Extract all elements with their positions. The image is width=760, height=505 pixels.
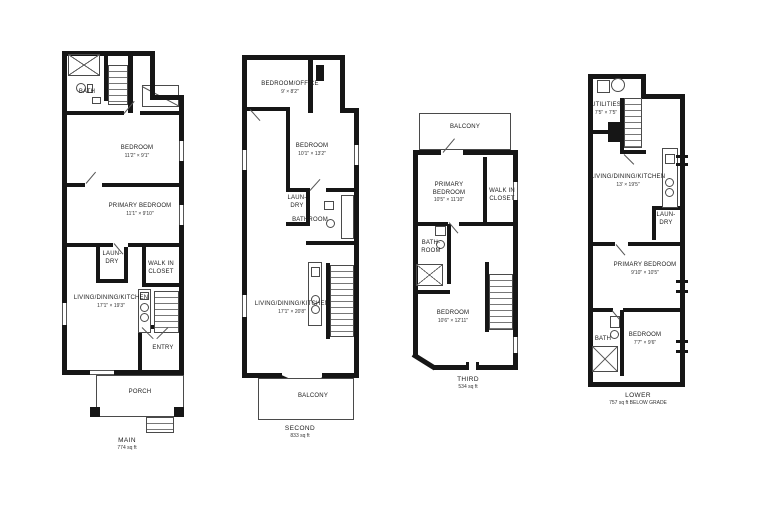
wall (67, 243, 113, 247)
room-dims: 9' × 8'2" (281, 89, 299, 96)
stove-burner (665, 188, 674, 197)
room-dims: 7'5" × 7'5" (595, 110, 617, 117)
window-frame (676, 290, 688, 293)
chimney-block (316, 65, 324, 81)
wall (340, 55, 345, 113)
room-label: LAUN-DRY (287, 195, 307, 210)
room-name: BEDROOM (121, 145, 153, 153)
floorplan-sheet: { "drawing": { "wall_color": "#161616", … (0, 0, 760, 505)
wall (459, 222, 518, 226)
stove-burner (665, 178, 674, 187)
room-label: BEDROOM10'6" × 12'11" (425, 310, 481, 324)
wall (418, 290, 450, 294)
room-dims: 10'6" × 12'11" (438, 318, 468, 325)
porch-steps (146, 417, 174, 433)
window (242, 295, 247, 317)
room-dims: 9'10" × 10'5" (631, 270, 659, 277)
room-name: BATH (79, 89, 95, 97)
room-label: BATH (72, 89, 102, 97)
wall (150, 51, 155, 100)
room-dims: 11'1" × 9'10" (126, 211, 153, 218)
wall (447, 224, 451, 284)
wall (479, 365, 518, 370)
room-label: LAUN-DRY (101, 251, 123, 266)
window (242, 150, 247, 170)
sink-fixture (435, 226, 446, 236)
room-label: BALCONY (435, 124, 495, 132)
floor-area: 757 sq ft BELOW GRADE (609, 400, 667, 406)
room-label: BEDROOM/OFFICE9' × 8'2" (258, 81, 322, 95)
wall (463, 150, 518, 155)
room-label: BEDROOM7'7" × 9'6" (617, 332, 673, 346)
chimney-block (608, 122, 620, 142)
room-label: BATHROOM (290, 217, 330, 225)
stairs (624, 98, 642, 148)
wall (128, 243, 179, 247)
room-label: LIVING/DINING/KITCHEN17'1" × 20'8" (268, 301, 316, 315)
wall (102, 183, 179, 187)
sink-fixture (92, 97, 101, 104)
floor-title: THIRD (457, 376, 479, 383)
room-name: PRIMARY BEDROOM (109, 203, 172, 211)
room-label: PRIMARY BEDROOM11'1" × 9'10" (100, 203, 180, 217)
sink-fixture (311, 267, 320, 277)
sink-fixture (665, 154, 675, 164)
porch-post (174, 407, 184, 417)
floor-title-block: LOWER757 sq ft BELOW GRADE (588, 392, 688, 406)
room-dims: 17'1" × 20'8" (278, 309, 306, 316)
wall (641, 94, 685, 99)
window-frame (676, 340, 688, 343)
window-frame (676, 163, 688, 166)
window (179, 141, 184, 161)
wall (326, 188, 359, 192)
floor-title: MAIN (118, 437, 136, 444)
window (354, 145, 359, 165)
wall (588, 382, 685, 387)
room-label: BALCONY (285, 393, 341, 401)
wall (306, 241, 359, 245)
room-name: LIVING/DINING/KITCHEN (591, 174, 666, 182)
room-name: BATH (595, 336, 611, 344)
room-name: LIVING/DINING/KITCHEN (74, 295, 149, 303)
shower-fixture (68, 54, 100, 76)
room-name: PRIMARY BEDROOM (614, 262, 677, 270)
room-name: WALK IN CLOSET (146, 261, 176, 276)
room-name: BEDROOM (437, 310, 469, 318)
wall (247, 107, 288, 111)
room-label: LAUN-DRY (656, 212, 676, 227)
wall (628, 242, 680, 246)
room-dims: 10'1" × 13'2" (298, 151, 326, 158)
wall (142, 283, 179, 287)
wall (593, 308, 613, 312)
chamfer-wall (412, 352, 437, 370)
room-label: PRIMARY BEDROOM10'5" × 11'10" (418, 182, 480, 204)
balcony-outline (419, 113, 511, 150)
room-label: UTILITIES7'5" × 7'5" (590, 102, 622, 116)
stairs (330, 265, 354, 337)
room-dims: 10'5" × 11'10" (434, 197, 464, 204)
floor-title: LOWER (625, 392, 651, 399)
wall (680, 94, 685, 387)
room-label: LIVING/DINING/KITCHEN13' × 19'5" (604, 174, 652, 188)
floor-title: SECOND (285, 425, 315, 432)
wall (593, 242, 615, 246)
room-label: BEDROOM10'1" × 13'2" (282, 143, 342, 157)
room-name: PRIMARY BEDROOM (418, 182, 480, 197)
wall (140, 111, 179, 115)
wall (62, 51, 67, 375)
room-label: PORCH (112, 389, 168, 397)
porch-post (90, 407, 100, 417)
floor-plan-lower: UTILITIES7'5" × 7'5" LIVING/DINING/KITCH… (588, 70, 690, 410)
window (513, 337, 518, 353)
wall (433, 365, 466, 370)
utility-fixture (611, 78, 625, 92)
door-swing (624, 154, 635, 165)
door-post (476, 362, 479, 370)
room-dims: 11'2" × 9'1" (125, 153, 150, 160)
room-name: LAUN-DRY (287, 195, 307, 210)
room-dims: 17'1" × 19'3" (97, 303, 125, 310)
stairs (108, 65, 128, 105)
wall (96, 247, 100, 281)
room-dims: 13' × 19'5" (616, 182, 639, 189)
room-label: WALK IN CLOSET (146, 261, 176, 276)
wall (96, 279, 128, 283)
room-label: PRIMARY BEDROOM9'10" × 10'5" (610, 262, 680, 276)
room-label: LIVING/DINING/KITCHEN17'1" × 19'3" (87, 295, 135, 309)
room-dims: 7'7" × 9'6" (634, 340, 656, 347)
room-name: LIVING/DINING/KITCHEN (255, 301, 330, 309)
door-swing (310, 179, 321, 191)
floor-title-block: SECOND833 sq ft (255, 425, 345, 439)
room-name: BATHROOM (292, 217, 328, 225)
wall (623, 308, 680, 312)
room-name: LAUN-DRY (101, 251, 123, 266)
room-name: BALCONY (298, 393, 328, 401)
window-frame (676, 350, 688, 353)
room-name: UTILITIES (591, 102, 621, 110)
room-label: ENTRY (148, 345, 178, 353)
wall (124, 247, 128, 281)
bathtub-fixture (341, 195, 354, 239)
sink-fixture (324, 201, 334, 210)
door-post (466, 362, 469, 370)
room-name: BEDROOM (629, 332, 661, 340)
wall (483, 157, 487, 222)
room-label: BATH (590, 336, 616, 344)
window-frame (676, 280, 688, 283)
room-name: BEDROOM/OFFICE (261, 81, 318, 89)
utility-fixture (597, 80, 610, 93)
room-name: PORCH (129, 389, 152, 397)
wall (242, 55, 247, 373)
floor-area: 534 sq ft (458, 384, 477, 390)
door-swing (616, 244, 626, 255)
window (62, 303, 67, 325)
room-name: BEDROOM (296, 143, 328, 151)
wall (67, 111, 124, 115)
floor-area: 774 sq ft (117, 445, 136, 451)
stairs (489, 274, 513, 330)
wall (179, 95, 184, 375)
floor-area: 833 sq ft (290, 433, 309, 439)
room-name: LAUN-DRY (656, 212, 676, 227)
floor-title-block: THIRD534 sq ft (423, 376, 513, 390)
floor-title-block: MAIN774 sq ft (82, 437, 172, 451)
stove-burner (140, 313, 149, 322)
wall (138, 327, 142, 375)
room-name: WALK IN CLOSET (489, 188, 515, 203)
room-name: BATH-ROOM (415, 240, 447, 255)
wall (242, 55, 313, 60)
room-name: BALCONY (450, 124, 480, 132)
room-name: ENTRY (152, 345, 173, 353)
wall (67, 183, 85, 187)
floor-plan-third: BALCONY PRIMARY BEDROOM10'5" × 11'10" WA… (413, 112, 525, 404)
shower-fixture (592, 346, 618, 372)
floor-plan-second: BEDROOM/OFFICE9' × 8'2" BEDROOM10'1" × 1… (242, 55, 362, 450)
window-frame (676, 155, 688, 158)
shower-fixture (416, 264, 443, 286)
room-label: BEDROOM11'2" × 9'1" (102, 145, 172, 159)
door-swing (86, 172, 96, 184)
room-label: WALK IN CLOSET (489, 188, 515, 203)
room-label: BATH-ROOM (415, 240, 447, 255)
floor-plan-main: BATH BEDROOM11'2" × 9'1" PRIMARY BEDROOM… (62, 45, 192, 465)
stove-burner (140, 303, 149, 312)
